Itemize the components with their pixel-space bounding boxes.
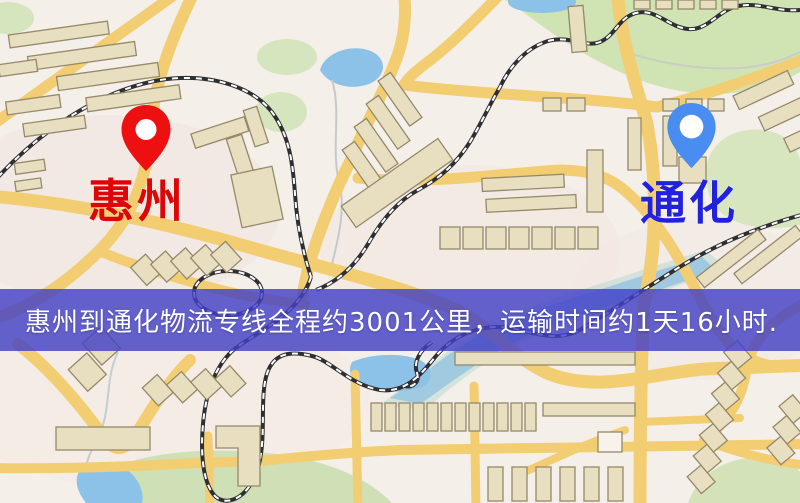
route-info-banner: 惠州到通化物流专线全程约3001公里，运输时间约1天16小时. xyxy=(0,289,800,351)
destination-label: 通化 xyxy=(640,180,738,226)
logistics-route-map: 惠州 通化 惠州到通化物流专线全程约3001公里，运输时间约1天16小时. xyxy=(0,0,800,503)
route-info-text: 惠州到通化物流专线全程约3001公里，运输时间约1天16小时. xyxy=(0,302,778,339)
origin-pin-icon xyxy=(120,104,172,172)
origin-label: 惠州 xyxy=(88,178,186,224)
map-background xyxy=(0,0,800,503)
destination-pin-icon xyxy=(665,102,718,169)
